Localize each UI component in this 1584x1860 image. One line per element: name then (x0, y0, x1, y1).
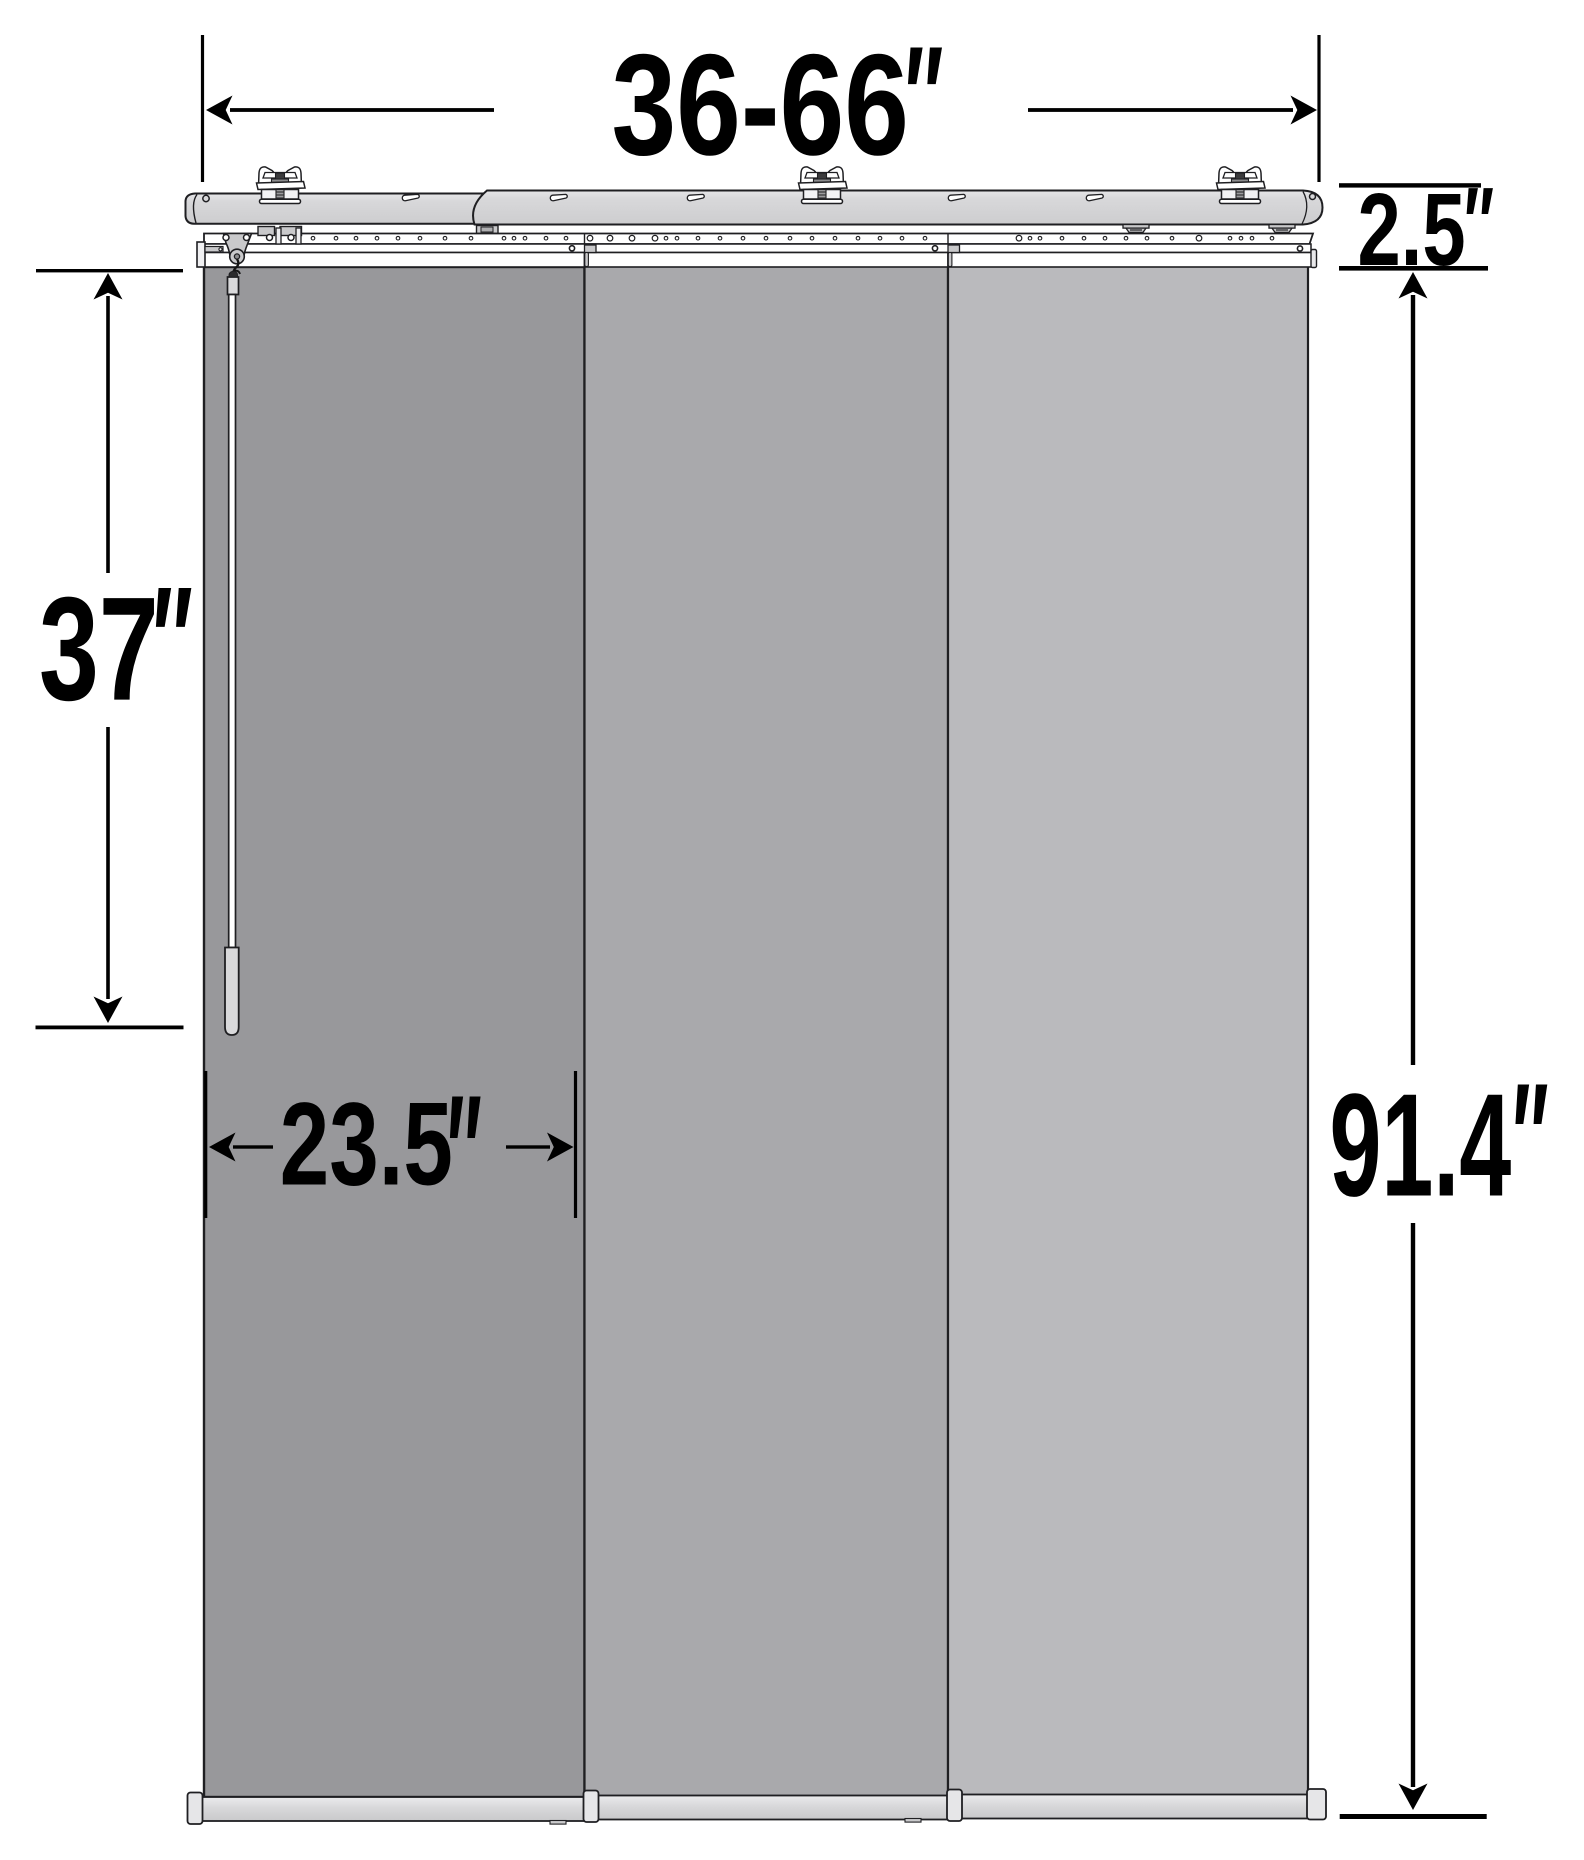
svg-text:23.5: 23.5 (280, 1078, 453, 1210)
svg-text:″: ″ (152, 556, 192, 727)
svg-text:2.5: 2.5 (1358, 172, 1466, 287)
svg-text:″: ″ (447, 1061, 482, 1244)
svg-text:37: 37 (39, 567, 159, 732)
svg-text:91.4: 91.4 (1330, 1064, 1512, 1227)
svg-text:″: ″ (1512, 1050, 1548, 1224)
svg-text:36-66: 36-66 (612, 23, 909, 185)
svg-text:″: ″ (905, 16, 944, 177)
svg-text:″: ″ (1464, 166, 1494, 280)
